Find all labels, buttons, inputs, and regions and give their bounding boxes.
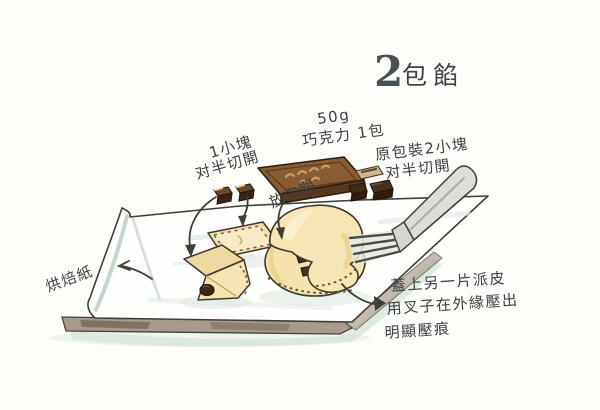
label-cover-line3: 明顯壓痕 xyxy=(384,319,451,342)
folded-pastry-chocolate xyxy=(200,285,214,296)
chocolate-piece-small-4 xyxy=(370,180,393,200)
recipe-step-illustration: 2 包餡 50g 巧克力 1包 1小塊 对半切開 原包裝2小塊 对半切開 放中間… xyxy=(0,0,600,410)
label-chocolate-pack-line1: 50g xyxy=(316,106,351,128)
illustration-canvas: 2 包餡 50g 巧克力 1包 1小塊 对半切開 原包裝2小塊 对半切開 放中間… xyxy=(0,0,600,410)
step-title-number: 2 xyxy=(374,47,403,96)
chocolate-piece-small-1 xyxy=(214,187,232,204)
chocolate-piece-small-2 xyxy=(236,184,254,201)
step-title-label: 包餡 xyxy=(402,61,464,90)
step-title: 2 包餡 xyxy=(374,47,464,96)
label-baking-paper: 烘焙紙 xyxy=(43,262,96,296)
chocolate-piece-small-3 xyxy=(349,183,367,201)
label-cover-line1: 蓋上另一片派皮 xyxy=(390,269,506,295)
chocolate-piece-wrapped xyxy=(356,166,383,179)
